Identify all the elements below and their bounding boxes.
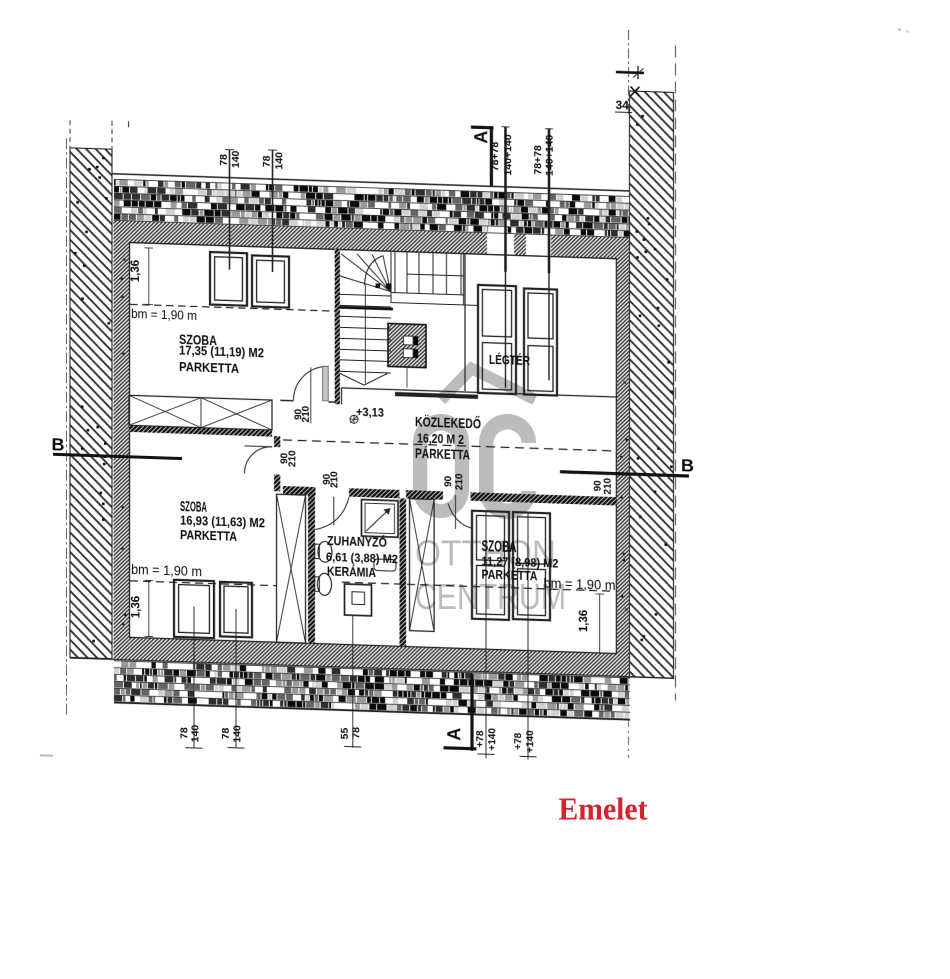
svg-text:140: 140 bbox=[232, 725, 244, 743]
svg-text:78: 78 bbox=[220, 727, 232, 739]
svg-text:B: B bbox=[681, 455, 694, 475]
svg-text:17,35 (11,19) M2: 17,35 (11,19) M2 bbox=[179, 343, 264, 360]
svg-text:PÁRKETTA: PÁRKETTA bbox=[415, 446, 470, 463]
svg-text:PARKETTA: PARKETTA bbox=[179, 360, 239, 376]
svg-text:bm = 1,90 m: bm = 1,90 m bbox=[131, 306, 197, 323]
svg-text:78+78: 78+78 bbox=[532, 145, 544, 175]
svg-text:A: A bbox=[471, 130, 491, 144]
svg-text:78: 78 bbox=[261, 155, 273, 167]
svg-text:+140: +140 bbox=[487, 728, 498, 751]
svg-text:140+140: 140+140 bbox=[502, 134, 514, 176]
svg-text:bm = 1,90 m: bm = 1,90 m bbox=[131, 561, 202, 579]
svg-text:210: 210 bbox=[301, 405, 312, 422]
svg-text:PARKETTA: PARKETTA bbox=[180, 527, 237, 544]
svg-text:KÖZLEKEDŐ: KÖZLEKEDŐ bbox=[415, 412, 481, 431]
svg-text:B: B bbox=[52, 434, 65, 454]
svg-text:210: 210 bbox=[330, 471, 341, 488]
svg-text:210: 210 bbox=[603, 477, 614, 494]
svg-text:55: 55 bbox=[339, 727, 351, 739]
svg-text:+78: +78 bbox=[513, 732, 524, 750]
svg-text:140: 140 bbox=[190, 724, 202, 742]
svg-text:LÉGTÉR: LÉGTÉR bbox=[489, 352, 530, 368]
svg-text:34: 34 bbox=[616, 98, 630, 112]
svg-text:bm = 1,90 m: bm = 1,90 m bbox=[544, 575, 616, 593]
svg-text:78: 78 bbox=[351, 727, 363, 739]
svg-text:1,36: 1,36 bbox=[130, 260, 142, 283]
svg-text:+140: +140 bbox=[525, 730, 536, 753]
svg-text:90: 90 bbox=[443, 475, 454, 487]
svg-text:KERÁMIA: KERÁMIA bbox=[327, 563, 376, 580]
svg-text:ZUHANYZÓ: ZUHANYZÓ bbox=[327, 533, 387, 550]
svg-text:16,20 M 2: 16,20 M 2 bbox=[417, 431, 464, 447]
svg-text:210: 210 bbox=[288, 450, 299, 467]
svg-text:+78: +78 bbox=[475, 730, 486, 748]
svg-text:A: A bbox=[444, 727, 464, 741]
svg-text:1,36: 1,36 bbox=[578, 610, 590, 633]
svg-text:1,36: 1,36 bbox=[131, 596, 143, 619]
svg-text:140+140: 140+140 bbox=[544, 134, 556, 176]
svg-text:140: 140 bbox=[274, 152, 286, 170]
svg-text:140: 140 bbox=[230, 150, 242, 168]
svg-text:210: 210 bbox=[454, 473, 465, 490]
svg-text:PARKETTA: PARKETTA bbox=[482, 567, 538, 584]
svg-text:+3,13: +3,13 bbox=[356, 405, 384, 420]
svg-text:78: 78 bbox=[218, 154, 230, 166]
svg-text:Emelet: Emelet bbox=[559, 792, 648, 827]
